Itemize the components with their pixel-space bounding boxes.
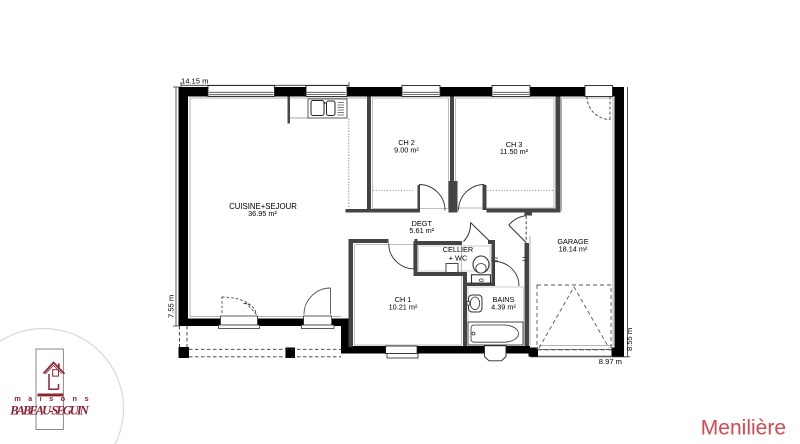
svg-text:36.95 m²: 36.95 m² <box>248 209 277 218</box>
svg-text:BABEAU-SEGUIN: BABEAU-SEGUIN <box>9 404 89 418</box>
svg-text:10.21 m²: 10.21 m² <box>389 302 418 311</box>
svg-text:maisons: maisons <box>14 394 96 403</box>
svg-text:Menilière: Menilière <box>701 417 786 440</box>
svg-text:18.14 m²: 18.14 m² <box>559 244 588 253</box>
svg-text:7.55 m: 7.55 m <box>167 295 176 318</box>
svg-text:5.61 m²: 5.61 m² <box>409 226 434 235</box>
svg-text:8.55 m: 8.55 m <box>625 328 634 351</box>
svg-text:8.97 m: 8.97 m <box>599 357 622 366</box>
svg-text:4.39 m²: 4.39 m² <box>491 302 516 311</box>
svg-text:9.00 m²: 9.00 m² <box>394 145 419 154</box>
svg-text:14.15 m: 14.15 m <box>181 76 208 85</box>
svg-text:+ WC: + WC <box>449 253 467 262</box>
svg-text:11.50 m²: 11.50 m² <box>500 147 529 156</box>
